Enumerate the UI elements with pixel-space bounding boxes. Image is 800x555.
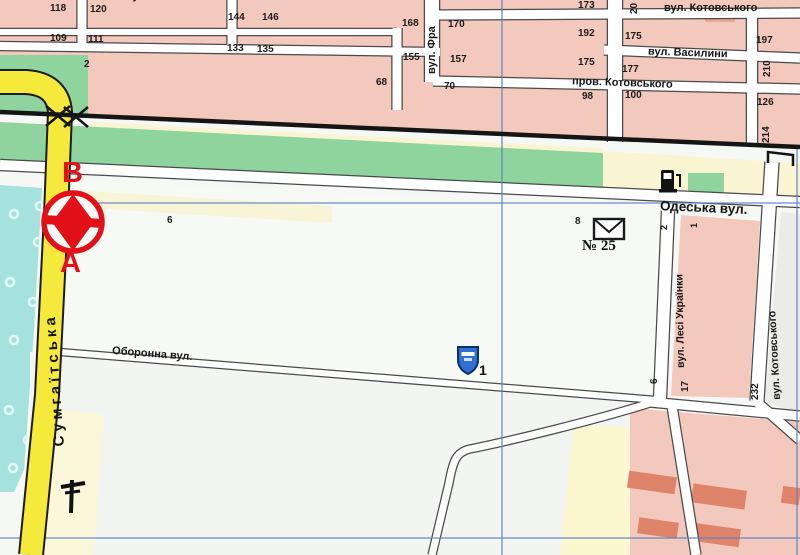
house-number: 68 (376, 78, 387, 88)
house-number: 155 (403, 53, 420, 63)
house-number: 177 (622, 65, 639, 75)
house-number: 2 (660, 225, 669, 230)
house-number: 133 (227, 44, 244, 54)
house-number: 135 (257, 45, 274, 55)
house-number: 2 (84, 60, 90, 70)
route-point-a-label: А (60, 249, 81, 278)
route-endpoints-marker-icon[interactable] (44, 193, 102, 251)
house-number: 111 (88, 35, 104, 45)
house-number: 197 (756, 36, 773, 46)
house-number: 8 (575, 217, 581, 227)
route-point-b-label: В (62, 159, 83, 188)
house-number: 98 (582, 92, 593, 102)
house-number: 168 (402, 19, 419, 29)
street-label-franka: вул. Фра (427, 26, 438, 74)
house-number: 232 (751, 383, 761, 400)
house-number: 173 (578, 1, 595, 11)
house-number: 17 (681, 381, 691, 392)
post-office-envelope-icon[interactable] (594, 219, 624, 239)
house-number: 120 (90, 5, 107, 15)
house-number: 157 (450, 55, 467, 65)
house-number: 175 (625, 32, 642, 42)
map-canvas[interactable]: вул. Василини вул. Котовського вул. Васи… (0, 0, 800, 555)
house-number: 6 (167, 216, 173, 226)
house-number: 126 (757, 98, 774, 108)
shield-marker-number: 1 (479, 363, 487, 377)
shield-marker-icon[interactable] (458, 347, 478, 374)
house-number: 192 (578, 29, 595, 39)
house-number: 6 (650, 378, 660, 384)
house-number: 210 (763, 60, 773, 77)
house-number: 1 (690, 223, 699, 228)
house-number: 20 (630, 3, 640, 14)
house-number: 70 (444, 82, 455, 92)
house-number: 175 (578, 58, 595, 68)
house-number: 170 (448, 20, 465, 30)
house-number: 214 (762, 126, 772, 143)
street-label-top-clipped: вул. Василини (126, 0, 206, 2)
house-number: 144 (228, 13, 245, 23)
house-number: 109 (50, 34, 67, 44)
house-number: 146 (262, 13, 279, 23)
street-label-kotovskogo-top: вул. Котовського (664, 3, 757, 14)
post-office-number: № 25 (582, 239, 616, 254)
house-number: 100 (625, 91, 642, 101)
house-number: 118 (50, 4, 66, 14)
street-label-lesi-ukrainky: вул. Лесі Українки (674, 274, 686, 368)
